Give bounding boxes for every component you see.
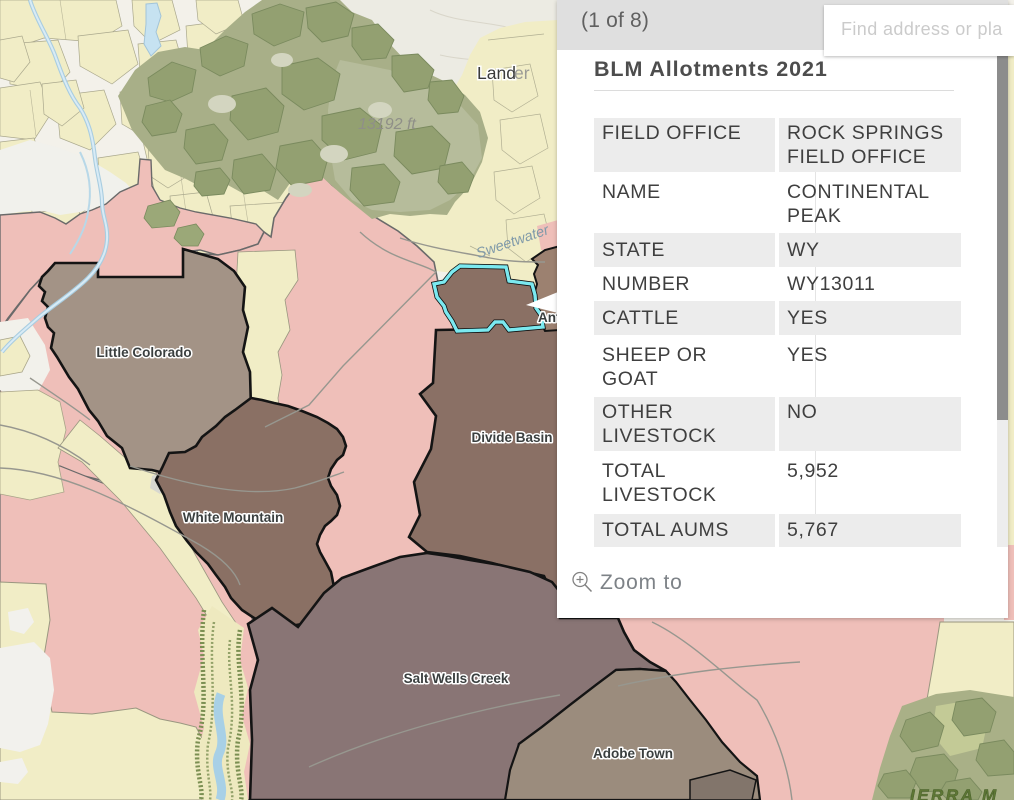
svg-text:Land: Land bbox=[477, 63, 516, 83]
svg-text:Adobe Town: Adobe Town bbox=[593, 746, 673, 761]
svg-text:IERRA M: IERRA M bbox=[910, 786, 999, 800]
svg-text:Divide Basin: Divide Basin bbox=[471, 430, 552, 445]
svg-text:Salt Wells Creek: Salt Wells Creek bbox=[404, 671, 509, 686]
svg-text:13192 ft: 13192 ft bbox=[358, 116, 416, 133]
svg-text:er: er bbox=[514, 63, 530, 83]
svg-text:White Mountain: White Mountain bbox=[183, 510, 283, 525]
svg-text:Little Colorado: Little Colorado bbox=[96, 345, 191, 360]
